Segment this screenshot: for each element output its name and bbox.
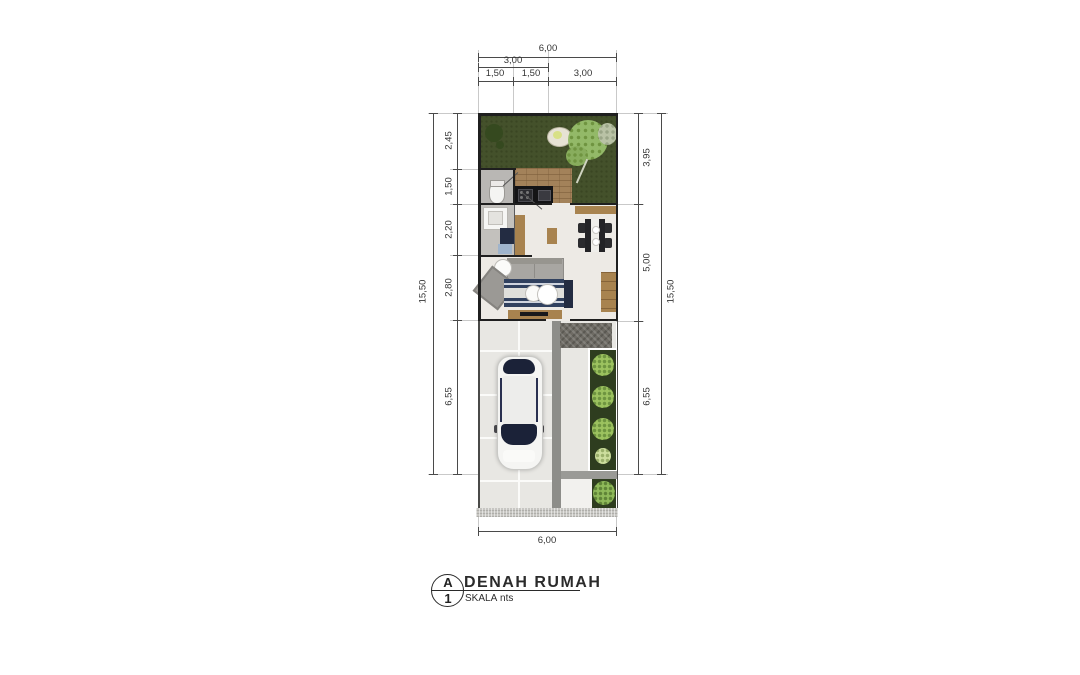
tree-icon [598, 123, 617, 145]
dim-label-right-seg1: 3,95 [642, 140, 653, 176]
path-strip [552, 321, 561, 508]
bush-icon [592, 354, 614, 376]
dim-tick [429, 474, 438, 475]
storage-box [500, 228, 514, 244]
dim-tick [657, 113, 666, 114]
car-rear-window [503, 359, 535, 374]
scale-value: nts [500, 593, 513, 604]
doormat [560, 323, 612, 348]
dining-table-runner [591, 219, 599, 252]
laundry-basket [498, 244, 512, 254]
car-side-window [536, 378, 538, 422]
dim-label-right-total: 15,50 [666, 274, 677, 310]
wood-side-table [547, 228, 557, 244]
bush-icon [595, 448, 611, 464]
dim-label-left-seg4: 2,80 [444, 270, 455, 306]
scale-note: SKALA nts [465, 593, 513, 604]
dim-line-left-total [433, 113, 434, 474]
dim-tick [657, 474, 666, 475]
lot-edge [478, 321, 480, 508]
sofa-cushion-divider [534, 264, 535, 278]
dim-tick [616, 527, 617, 536]
dim-label-right-seg2: 5,00 [642, 245, 653, 281]
tile-grout [479, 350, 553, 352]
dim-label-right-seg3: 6,55 [642, 379, 653, 415]
dim-tick [453, 474, 462, 475]
dim-label-left-seg2: 1,50 [444, 169, 455, 205]
drawing-title: DENAH RUMAH [464, 574, 601, 592]
dim-line-bottom [478, 531, 617, 532]
wall [478, 255, 532, 257]
dim-tick [453, 113, 462, 114]
dim-tick [453, 255, 462, 256]
wall [478, 168, 516, 170]
dim-tick [634, 321, 643, 322]
dim-label-left-seg3: 2,20 [444, 212, 455, 248]
sheet-number: 1 [440, 591, 456, 606]
dim-tick [634, 474, 643, 475]
dim-label-bottom: 6,00 [527, 535, 567, 546]
floor-plan-sheet: 6,00 3,00 1,50 1,50 3,00 15,50 2,45 1,50… [0, 0, 1080, 675]
dim-tick [478, 53, 479, 62]
dim-label-top-mid: 3,00 [493, 55, 533, 66]
dim-label-top-seg2: 1,50 [511, 68, 551, 79]
plate-icon [592, 226, 600, 234]
wall [514, 205, 515, 255]
bush-icon [592, 418, 614, 440]
dim-line-right-total [661, 113, 662, 474]
walkway [561, 471, 618, 479]
car-side-window [500, 378, 502, 422]
shrub-icon [485, 124, 503, 142]
wall [478, 203, 552, 205]
dim-tick [453, 320, 462, 321]
dim-tick [634, 204, 643, 205]
car-hood [503, 450, 535, 462]
plate-icon [592, 238, 600, 246]
coffee-table-icon [537, 284, 558, 305]
dim-label-top-seg3: 3,00 [563, 68, 603, 79]
washing-machine-door [488, 211, 503, 225]
dining-chair [604, 223, 612, 233]
dim-line-left-segments [457, 113, 458, 474]
dim-tick [429, 113, 438, 114]
car-roof [502, 376, 536, 424]
dim-label-left-seg5: 6,55 [444, 379, 455, 415]
dim-label-top-total: 6,00 [528, 43, 568, 54]
wall [513, 168, 515, 205]
wood-shelf [515, 215, 525, 256]
wall [570, 203, 618, 205]
dim-tick [478, 527, 479, 536]
garden-stone-moss [553, 131, 562, 139]
gravel-strip [476, 508, 618, 517]
lot-edge [617, 321, 619, 508]
scale-label: SKALA [465, 593, 497, 604]
wood-bench [575, 206, 616, 214]
bush-icon [592, 386, 614, 408]
wall [478, 113, 618, 116]
side-yard [561, 479, 592, 508]
dim-label-left-total: 15,50 [418, 274, 429, 310]
kitchen-sink [538, 190, 551, 201]
tall-cabinet [601, 272, 616, 312]
dining-chair [604, 238, 612, 248]
bookshelf [564, 280, 573, 308]
wall [616, 113, 619, 321]
dim-tick [616, 77, 617, 86]
dim-label-left-seg1: 2,45 [444, 123, 455, 159]
dim-line-right-segments [638, 113, 639, 474]
dim-label-top-seg1: 1,50 [475, 68, 515, 79]
tv-icon [520, 312, 548, 316]
dim-tick [634, 113, 643, 114]
wall [478, 113, 481, 321]
dim-tick [616, 53, 617, 62]
bush-icon [593, 481, 615, 505]
car-windshield [501, 424, 537, 445]
sheet-letter: A [440, 575, 456, 590]
